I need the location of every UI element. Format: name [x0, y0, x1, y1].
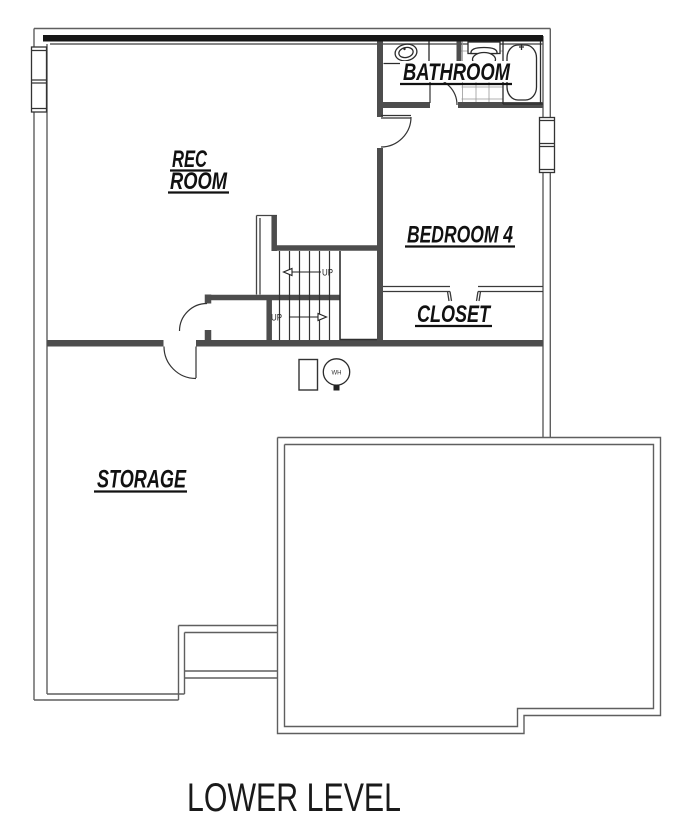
stair-walls	[205, 215, 383, 343]
exterior-walls	[34, 29, 661, 734]
right-window-icon	[540, 118, 555, 173]
floor-plan-page: UP UP	[0, 0, 694, 832]
bedroom4-label: BEDROOM 4	[407, 222, 513, 249]
bedroom-door	[381, 116, 411, 148]
arrowhead-right-icon	[318, 314, 327, 321]
rec-room-hall-door	[180, 304, 208, 332]
up-label-lower: UP	[271, 313, 282, 323]
bathroom-label: BATHROOM	[403, 59, 511, 86]
storage-door	[164, 347, 196, 379]
up-label-upper: UP	[322, 268, 333, 278]
rec-room-label-line2: ROOM	[170, 168, 228, 195]
closet-opening-jambs	[448, 292, 481, 302]
plan-title: LOWER LEVEL	[187, 776, 401, 820]
outer-boundary	[34, 29, 550, 701]
room-labels: REC ROOM BATHROOM BEDROOM 4 CLOSET STORA…	[94, 59, 515, 494]
stair-landing	[340, 251, 377, 340]
lower-right-room-walls	[278, 438, 661, 734]
storage-label: STORAGE	[97, 466, 187, 494]
arrowhead-left-icon	[284, 269, 293, 276]
closet-north-wall	[383, 287, 543, 302]
water-heater-label: WH	[332, 371, 342, 377]
closet-label: CLOSET	[417, 301, 492, 328]
left-window-icon	[32, 47, 47, 112]
stair-up-arrow-lower	[289, 314, 327, 321]
water-heater: WH	[299, 359, 350, 391]
floor-plan-svg: UP UP	[0, 0, 694, 832]
stair-up-arrow-upper	[284, 269, 322, 276]
furnace-box-icon	[299, 360, 318, 391]
top-wall	[43, 35, 543, 42]
